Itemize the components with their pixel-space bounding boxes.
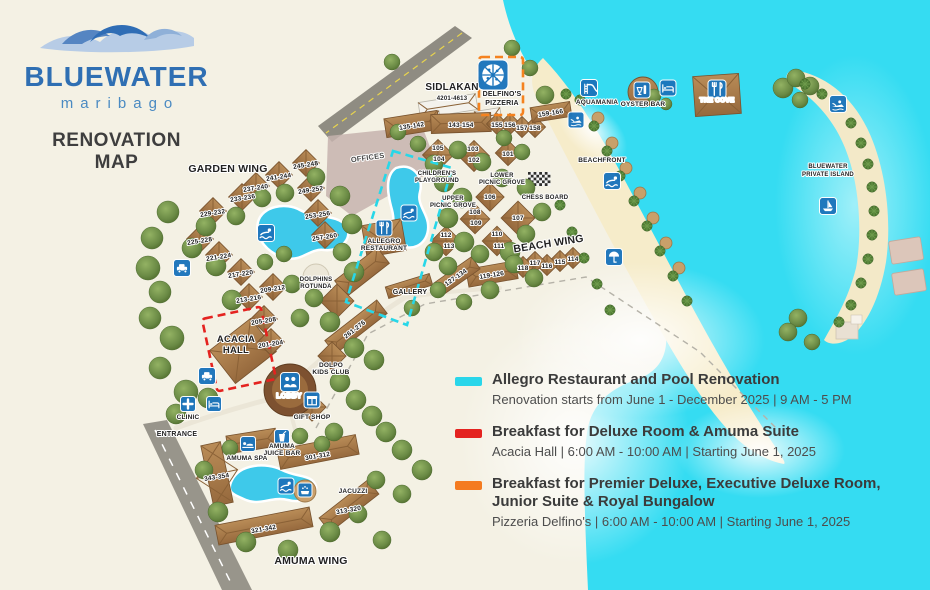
jacuzzi-icon [298,483,312,497]
palm-tree [817,89,827,99]
tree [292,428,308,444]
area-label-jacuzzi: JACUZZI [339,488,368,495]
tree [283,275,301,293]
tree [139,307,161,329]
room-label-143-154: 143-154 [448,122,473,129]
legend-swatch-red [455,429,482,438]
palm-tree [863,159,873,169]
palm-tree [834,317,844,327]
tree [291,309,309,327]
tree [481,281,499,299]
brand-name: BLUEWATER [14,63,219,91]
palm-tree [561,89,571,99]
area-label-dolpo: DOLPO [319,362,343,369]
gift-shop-icon [304,392,320,408]
area-label-upper: UPPER [442,196,464,202]
room-label-103: 103 [467,146,479,153]
room-label-109: 109 [470,220,482,227]
area-label-dolphins: DOLPHINS [300,277,333,283]
palm-tree [655,246,665,256]
area-label-gallery: GALLERY [393,289,428,296]
room-label-111: 111 [494,243,505,250]
wing-label-private-island: PRIVATE ISLAND [802,172,854,178]
allegro-pool-swim-icon [401,205,417,221]
pizzeria-icon [478,60,508,90]
spa-icon [241,437,256,452]
area-label-kids-club: KIDS CLUB [312,369,349,376]
brand-subname: maribago [14,95,219,112]
area-label-aquamania: AQUAMANIA [576,99,618,106]
tree [257,254,273,270]
tree [439,257,457,275]
area-label-chess-board: CHESS BOARD [522,195,569,201]
the-cove-restaurant-icon [708,80,726,98]
amuma-pool-swim-icon [278,478,294,494]
tree [196,216,216,236]
tree [376,422,396,442]
tree [320,522,340,542]
wing-label-amuma-wing: AMUMA WING [274,555,347,567]
room-label-155: 155 [491,122,503,129]
palm-tree [629,196,639,206]
legend-detail: Acacia Hall | 6:00 AM - 10:00 AM | Start… [455,444,887,459]
tree [404,300,420,316]
tree [792,92,808,108]
area-label-delfino-s: DELFINO'S [483,91,522,98]
palm-tree [863,254,873,264]
tree [536,86,554,104]
palm-tree [555,200,565,210]
legend-item-premier-breakfast: Breakfast for Premier Deluxe, Executive … [455,475,887,530]
legend: Allegro Restaurant and Pool Renovation R… [455,371,887,545]
area-label-hall: HALL [223,345,249,356]
tree [430,282,446,298]
legend-title: Breakfast for Deluxe Room & Amuma Suite [492,423,799,442]
palm-tree [846,300,856,310]
area-label-picnic-grove: PICNIC GROVE [479,180,525,186]
legend-item-allegro: Allegro Restaurant and Pool Renovation R… [455,371,887,407]
room-label-157: 157 [516,125,528,132]
tree [222,440,238,456]
wing-label-entrance: ENTRANCE [157,431,198,438]
tree [410,136,426,152]
tree [141,227,163,249]
tree [314,436,330,452]
tree [373,531,391,549]
tree [276,184,294,202]
beachfront-swim-icon [604,173,621,190]
tree [333,243,351,261]
allegro-restaurant-icon [376,220,392,236]
tree [320,312,340,332]
room-label-117: 117 [529,260,540,267]
massage-icon [207,397,222,412]
palm-tree [682,296,692,306]
tree [496,130,512,146]
island-watersports-icon [830,96,847,113]
tree [307,168,325,186]
legend-title: Breakfast for Premier Deluxe, Executive … [492,475,881,494]
tree [305,289,323,307]
room-label-116: 116 [541,263,552,270]
palm-tree [592,279,602,289]
palm-tree [856,138,866,148]
tree [533,203,551,221]
tree [346,390,366,410]
tree [514,144,530,160]
tree [393,485,411,503]
palm-tree [856,278,866,288]
area-label-the-cove: THE COVE [700,97,735,104]
tree [367,471,385,489]
room-label-102: 102 [468,157,480,164]
tree [136,256,160,280]
legend-swatch-orange [455,481,482,490]
room-label-113: 113 [443,243,454,250]
area-label-clinic: CLINIC [177,414,200,421]
room-label-106: 106 [484,194,496,201]
area-label-oyster-bar: OYSTER BAR [621,101,666,108]
tree [157,201,179,223]
room-label-112: 112 [440,232,451,239]
tree [522,60,538,76]
wing-label-bluewater: BLUEWATER [808,164,848,170]
palm-tree [589,121,599,131]
tree [456,294,472,310]
room-label-101: 101 [502,151,514,158]
room-label-105: 105 [432,145,444,152]
area-label-pizzeria: PIZZERIA [485,100,519,107]
legend-item-deluxe-breakfast: Breakfast for Deluxe Room & Amuma Suite … [455,423,887,459]
tree [454,232,474,252]
palm-tree [579,253,589,263]
tree [412,460,432,480]
tree [160,326,184,350]
area-label-amuma-spa: AMUMA SPA [226,455,267,462]
brand-logo: BLUEWATER maribago RENOVATION MAP [14,14,219,175]
area-label-lobby: LOBBY [276,393,302,400]
tree [392,440,412,460]
room-label-4201-4613: 4201-4613 [437,96,468,102]
palm-tree [867,182,877,192]
tree [149,357,171,379]
tree [227,207,245,225]
wing-label-sidlakan: SIDLAKAN [425,82,478,93]
lobby-parking-icon [199,368,216,385]
room-label-156: 156 [504,122,516,129]
palm-tree [800,79,810,89]
dolphin-waves-icon [32,14,202,56]
room-label-114: 114 [567,256,578,263]
tree [779,323,797,341]
tree [471,245,489,263]
area-label-acacia: ACACIA [217,334,255,345]
room-label-107: 107 [512,215,524,222]
tree [149,281,171,303]
palm-tree [602,146,612,156]
tree [362,406,382,426]
island-boat-icon [820,198,837,215]
tree [804,334,820,350]
tree [504,40,520,56]
jetski-icon [568,112,584,128]
room-label-115: 115 [554,259,565,266]
room-label-158: 158 [529,125,541,132]
palm-tree [867,230,877,240]
page-title: RENOVATION MAP [14,130,219,175]
legend-detail: Pizzeria Delfino's | 6:00 AM - 10:00 AM … [455,514,887,529]
tree [364,350,384,370]
parking-icon [174,260,191,277]
clinic-icon [181,397,196,412]
area-label-rotunda: ROTUNDA [300,284,332,290]
area-label-allegro: ALLEGRO [367,238,400,245]
palm-tree [846,118,856,128]
tree [208,502,228,522]
palm-tree [605,305,615,315]
palm-tree [668,271,678,281]
beach-umbrella-icon [606,249,623,266]
renovation-map-page: GARDEN WINGBEACH WINGAMUMA WINGSIDLAKANE… [0,0,930,590]
area-label-juice-bar: JUICE BAR [264,450,301,457]
area-label-lower: LOWER [490,173,514,179]
tree [342,214,362,234]
aquamania-icon [581,80,598,97]
room-label-118: 118 [517,265,528,272]
legend-swatch-cyan [455,377,482,386]
legend-title: Allegro Restaurant and Pool Renovation [492,371,780,390]
tree [449,141,467,159]
tree [330,186,350,206]
palm-tree [642,221,652,231]
oyster-bar-icon [634,82,650,98]
lobby-icon [281,373,300,392]
tree [236,532,256,552]
palm-tree [869,206,879,216]
tree [276,246,292,262]
beach-lounge-icon [660,80,676,96]
wing-label-beachfront: BEACHFRONT [578,157,626,164]
legend-detail: Renovation starts from June 1 - December… [455,392,887,407]
room-label-104: 104 [433,156,445,163]
garden-pool-swim-icon [258,225,275,242]
area-label-gift-shop: GIFT SHOP [294,414,331,421]
area-label-restaurant: RESTAURANT [361,245,407,252]
area-label-children-s: CHILDREN'S [418,171,456,177]
room-label-110: 110 [491,231,502,238]
tree [384,54,400,70]
tree [344,338,364,358]
room-label-108: 108 [469,209,481,216]
area-label-playground: PLAYGROUND [415,178,460,184]
area-label-amuma: AMUMA [269,443,295,450]
